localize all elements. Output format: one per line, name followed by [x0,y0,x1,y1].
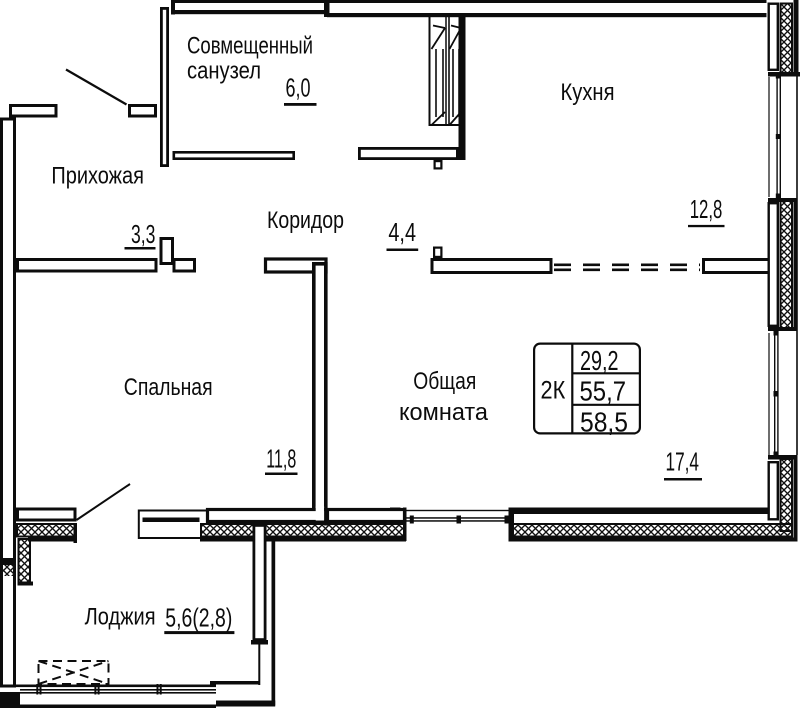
svg-text:санузел: санузел [187,58,261,85]
svg-text:11,8: 11,8 [266,446,296,474]
svg-text:Совмещенный: Совмещенный [187,33,313,60]
svg-text:3,3: 3,3 [131,221,155,249]
svg-text:55,7: 55,7 [580,376,627,407]
svg-text:6,0: 6,0 [286,75,311,103]
svg-text:Лоджия: Лоджия [85,604,156,631]
svg-text:17,4: 17,4 [666,449,700,477]
svg-text:12,8: 12,8 [690,196,723,224]
svg-text:58,5: 58,5 [580,407,628,438]
svg-text:5,6(2,8): 5,6(2,8) [165,605,232,633]
svg-text:2К: 2К [541,377,566,405]
svg-text:Прихожая: Прихожая [51,163,144,190]
svg-text:4,4: 4,4 [388,219,416,247]
svg-text:29,2: 29,2 [580,345,619,376]
svg-text:комната: комната [399,399,488,426]
svg-text:Кухня: Кухня [561,79,615,106]
svg-text:Общая: Общая [413,368,476,395]
svg-text:Спальная: Спальная [124,374,213,401]
svg-text:Коридор: Коридор [267,207,344,234]
